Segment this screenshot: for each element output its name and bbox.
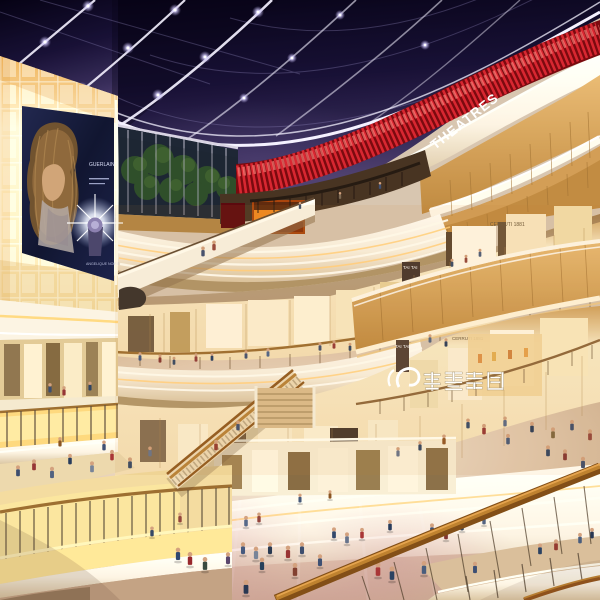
svg-text:ANGELIQUE NOIRE: ANGELIQUE NOIRE [86,262,120,266]
svg-text:GUERLAIN: GUERLAIN [89,162,115,168]
